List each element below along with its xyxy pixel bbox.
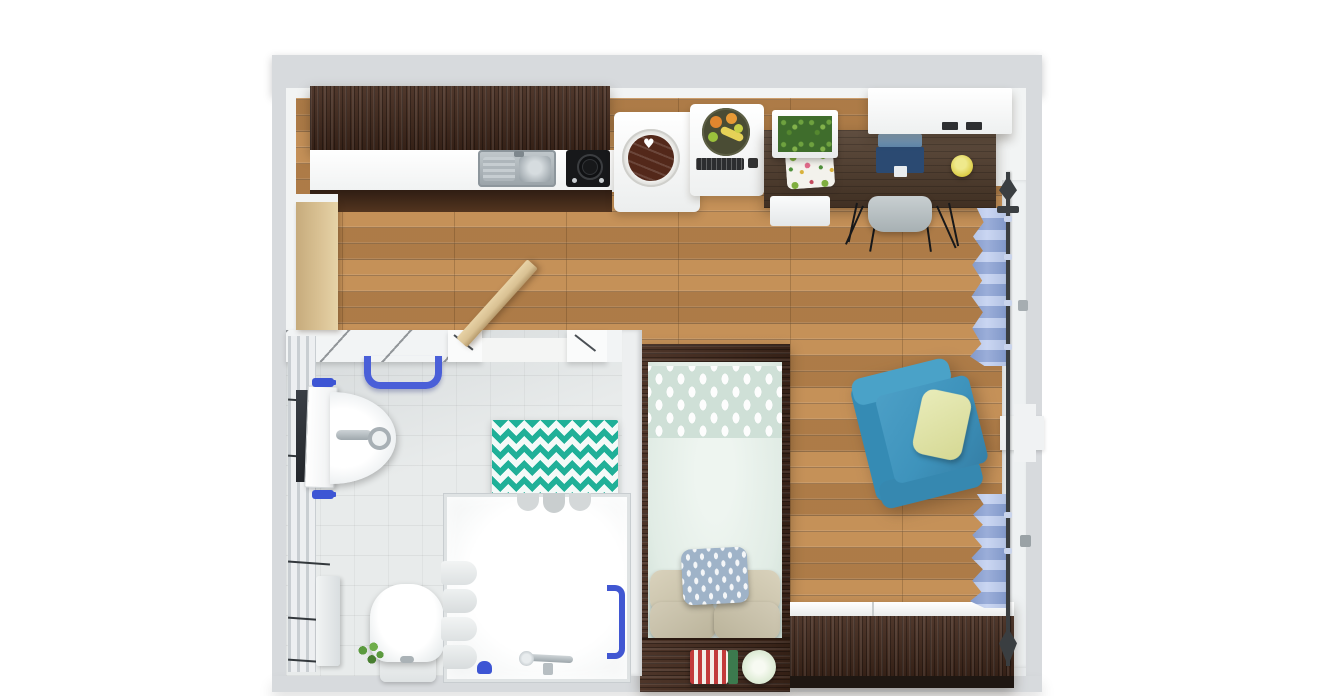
washer-drum: ♥: [628, 135, 674, 181]
kitchen-base-cabinet-front: [310, 190, 612, 212]
jamb-line-2: [574, 334, 596, 352]
tap-hook-top: [312, 378, 334, 387]
fruit-bowl: [702, 108, 750, 156]
tap-hook-bottom: [312, 490, 334, 499]
sink-faucet-knob: [368, 427, 391, 450]
bed-pillow-3: [650, 602, 716, 640]
sink-basin: [519, 156, 551, 182]
shelf-vent-right: [966, 122, 982, 130]
caddy-shelf-1: [441, 561, 477, 585]
cooktop-burner: [577, 154, 603, 180]
cooktop-knob-left: [572, 178, 577, 183]
floorplan-canvas: ♥: [0, 0, 1320, 696]
entry-door: [296, 202, 338, 330]
shower-enclosure: [444, 494, 630, 682]
bed-pillow-4: [714, 602, 780, 640]
shower-mixer: [543, 663, 553, 675]
kitchen-upper-cabinets: [310, 86, 610, 152]
rolled-towels: [690, 650, 728, 684]
heart-motif: ♥: [643, 137, 655, 152]
caddy-shelf-4: [443, 645, 477, 669]
hand-towel: [316, 576, 340, 666]
door-threshold: [482, 338, 567, 362]
chevron-bath-mat: [492, 420, 618, 502]
sink-faucet: [514, 151, 524, 157]
curtain-rod: [1006, 172, 1010, 666]
window-handle: [1020, 535, 1031, 547]
sink-faucet-bar: [336, 430, 372, 440]
caddy-shelf-3: [441, 617, 477, 641]
shower-towel-1: [517, 493, 539, 511]
desk-drawer-unit: [770, 196, 830, 226]
shower-towel-3: [569, 493, 591, 511]
desk-lamp: [951, 155, 973, 177]
shelf-vent-left: [942, 122, 958, 130]
shower-door-handle: [607, 585, 625, 659]
wall-right: [1026, 55, 1042, 692]
window-handle-2: [1018, 300, 1028, 311]
curtain-ring-5: [1004, 512, 1012, 518]
laptop-touchpad: [894, 166, 907, 177]
planter-plants: [778, 116, 832, 152]
entry-door-jamb-top: [290, 194, 338, 202]
planter-box: [772, 110, 838, 158]
fruit-apple: [734, 124, 743, 133]
sink-drainboard: [483, 157, 515, 181]
fruit-orange-2: [726, 113, 737, 124]
door-jamb-right: [567, 330, 607, 362]
bathroom-wall-top-right: [607, 330, 622, 362]
sideboard: [790, 602, 1014, 688]
washing-machine: ♥: [614, 112, 700, 212]
slippers: [477, 661, 492, 674]
sideboard-top-seam: [872, 602, 874, 616]
shower-towel-2: [543, 494, 565, 513]
rolled-towel-green: [728, 650, 738, 684]
curtain-ring-2: [1004, 254, 1012, 260]
cooktop-knob-right: [599, 178, 604, 183]
curtain-ring-3: [1004, 300, 1012, 306]
sideboard-body: [790, 616, 1014, 678]
decor-plate: [742, 650, 776, 684]
oven-control: [748, 158, 758, 168]
bed-footboard-shelf: [640, 638, 790, 692]
towel-rail: [364, 356, 442, 389]
laptop: [876, 134, 924, 180]
bed-frame: [640, 344, 790, 690]
shower-caddy: [441, 561, 477, 673]
duvet-pattern-band: [648, 366, 782, 438]
shower-head-disc: [519, 651, 534, 666]
curtain-ring-6: [1004, 548, 1012, 554]
oven-vent: [696, 158, 744, 170]
fruit-orange: [710, 116, 722, 128]
oven: [690, 104, 764, 196]
sideboard-plinth: [790, 676, 1014, 688]
desk-chair-seat: [868, 196, 932, 232]
curtain-ring-1: [1004, 216, 1012, 222]
rod-bracket-top: [997, 206, 1019, 213]
bathroom-plant: [352, 636, 388, 672]
bed-accent-pillow: [681, 546, 750, 605]
laptop-screen: [878, 134, 922, 147]
kitchen-sink: [478, 150, 556, 187]
caddy-shelf-2: [443, 589, 477, 613]
wall-shelf: [868, 88, 1012, 134]
toilet-button: [400, 656, 414, 663]
window-pier-arm: [1014, 404, 1036, 462]
cooktop: [566, 150, 610, 187]
fruit-lime: [708, 132, 718, 142]
curtain-ring-4: [1004, 344, 1012, 350]
